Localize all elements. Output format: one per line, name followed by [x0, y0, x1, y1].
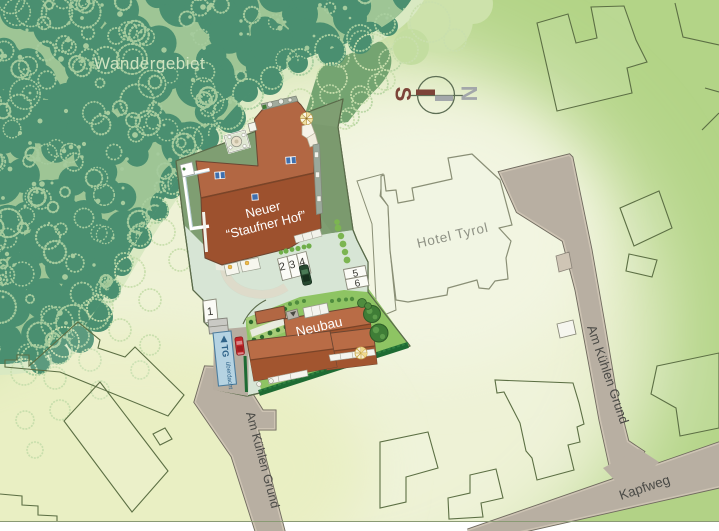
svg-text:S: S [391, 87, 416, 102]
svg-text:N: N [457, 86, 482, 102]
svg-text:Wandergebiet: Wandergebiet [94, 54, 205, 73]
svg-text:TG: TG [220, 344, 231, 357]
